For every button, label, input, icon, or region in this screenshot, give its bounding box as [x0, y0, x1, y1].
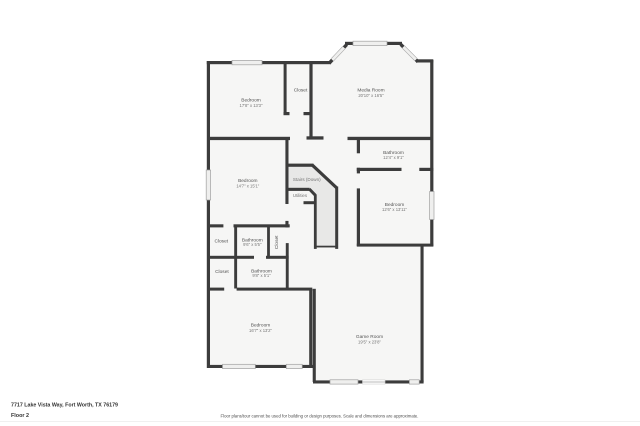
svg-text:Floor 2: Floor 2: [11, 413, 29, 419]
svg-text:9'6" x 5'5": 9'6" x 5'5": [243, 242, 262, 247]
svg-text:Closet: Closet: [214, 239, 228, 245]
svg-text:20'10" x 16'5": 20'10" x 16'5": [358, 93, 384, 98]
svg-text:Utilities: Utilities: [293, 193, 308, 198]
svg-text:Stairs (Down): Stairs (Down): [293, 177, 321, 182]
svg-text:16'7" x 13'2": 16'7" x 13'2": [249, 328, 272, 333]
svg-text:12'4" x 9'1": 12'4" x 9'1": [383, 155, 404, 160]
svg-text:19'5" x 23'8": 19'5" x 23'8": [358, 339, 381, 344]
svg-text:Closet: Closet: [215, 269, 229, 275]
svg-text:7717 Lake Vista Way, Fort Wort: 7717 Lake Vista Way, Fort Worth, TX 7617…: [11, 402, 118, 408]
svg-text:14'7" x 15'1": 14'7" x 15'1": [236, 183, 259, 188]
svg-text:Closet: Closet: [294, 88, 308, 94]
svg-text:12'6" x 13'11": 12'6" x 13'11": [382, 207, 407, 212]
svg-text:9'8" x 5'1": 9'8" x 5'1": [252, 273, 271, 278]
svg-text:Floor plans/tour cannot be use: Floor plans/tour cannot be used for buil…: [221, 414, 419, 419]
svg-text:Closet: Closet: [274, 235, 280, 249]
svg-text:17'8" x 13'3": 17'8" x 13'3": [240, 103, 263, 108]
